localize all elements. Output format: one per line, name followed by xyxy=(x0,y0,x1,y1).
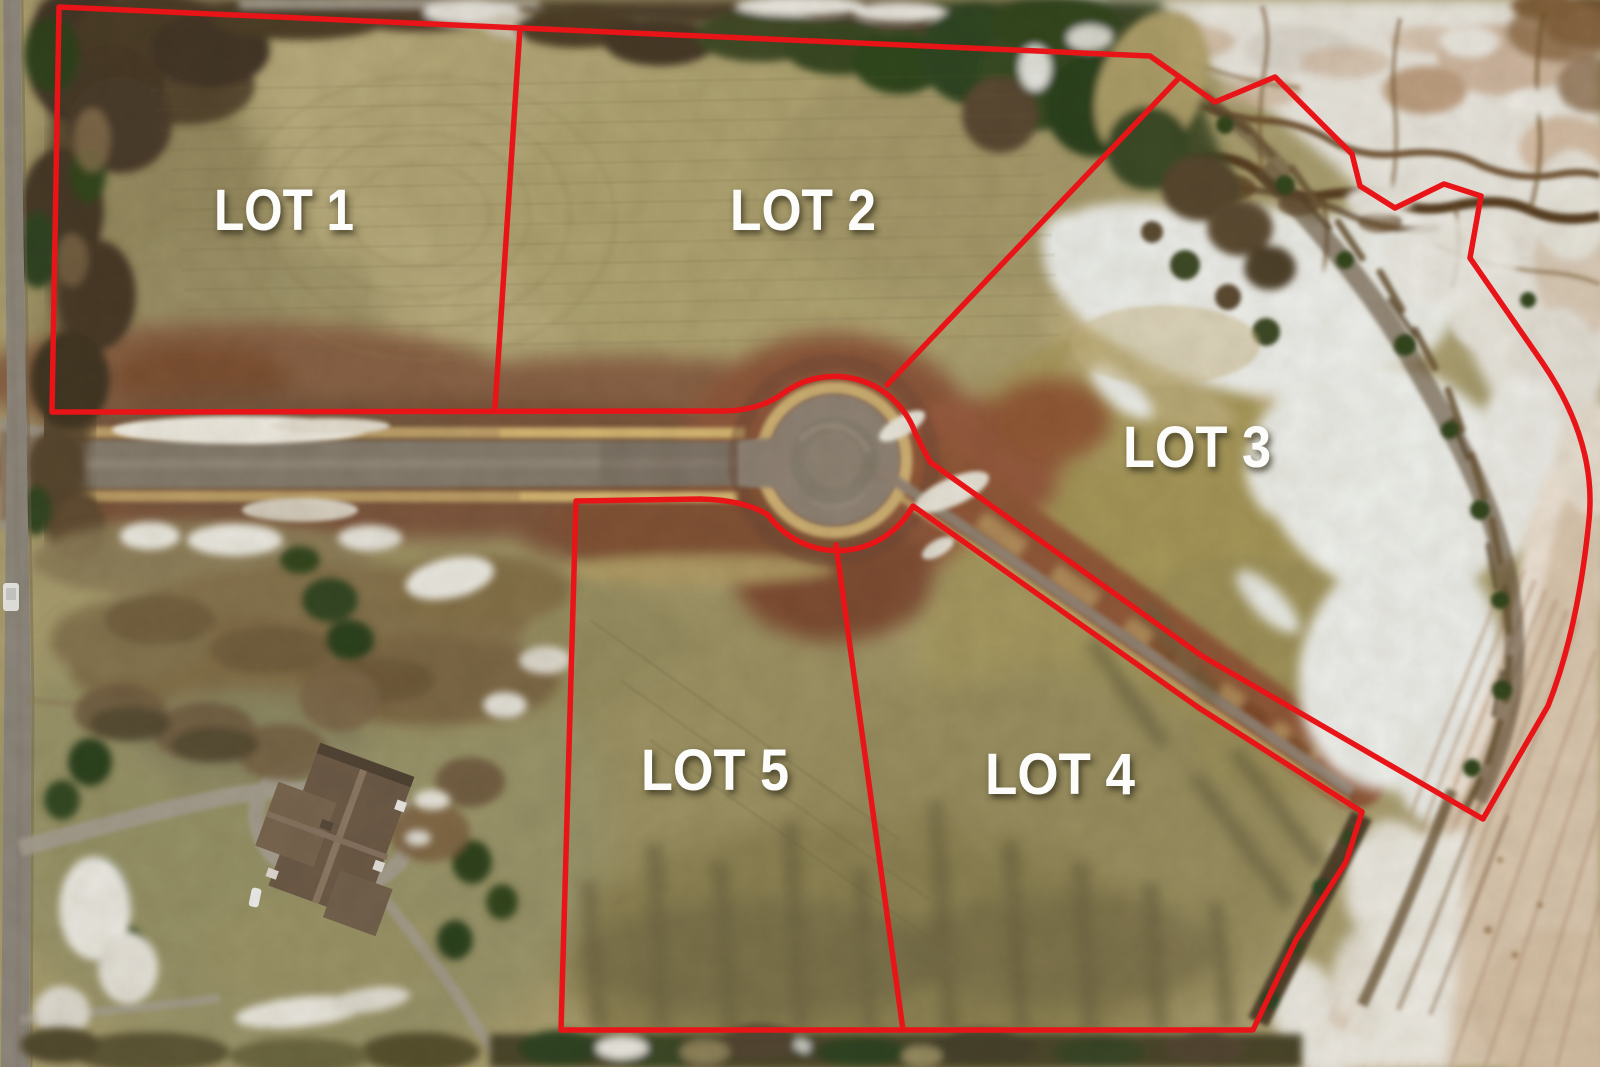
svg-text:LOT 3: LOT 3 xyxy=(1123,415,1271,480)
svg-text:LOT 2: LOT 2 xyxy=(730,178,876,243)
svg-text:LOT 5: LOT 5 xyxy=(641,738,789,803)
svg-text:LOT 4: LOT 4 xyxy=(985,742,1135,807)
svg-text:LOT 1: LOT 1 xyxy=(214,178,354,243)
